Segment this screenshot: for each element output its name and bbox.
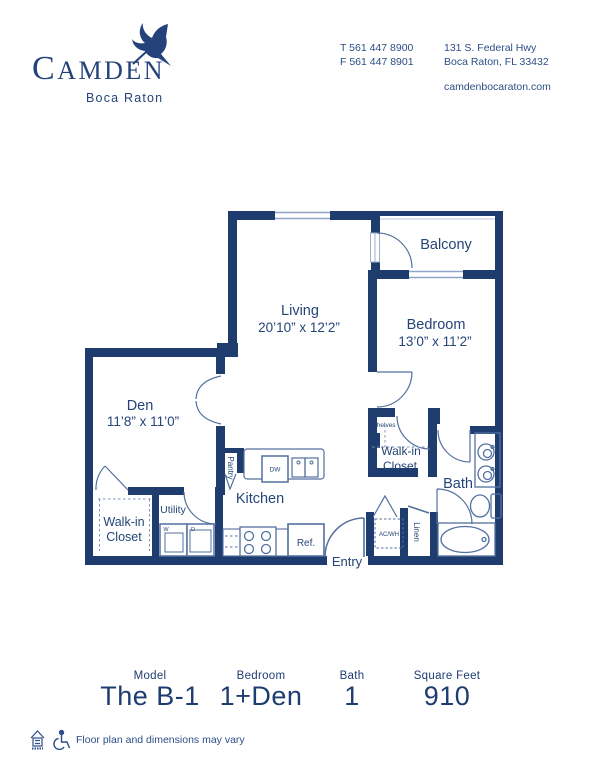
summary-value-sqft: 910 <box>424 681 471 712</box>
utility-door-arc <box>184 492 216 524</box>
bedroom-window <box>409 270 463 279</box>
den-french-door-upper <box>196 376 221 399</box>
room-label-den: Den <box>127 398 154 414</box>
room-label-utility: Utility <box>160 504 186 516</box>
den-closet-door-arc <box>96 466 128 490</box>
kitchen-sink <box>292 458 318 477</box>
room-dims-den: 11’8” x 11’0” <box>107 414 179 429</box>
linen-door-leaf <box>408 506 429 513</box>
balcony-door-arc <box>377 233 412 268</box>
bathtub <box>438 523 495 556</box>
label-shelves-right: Shelves <box>372 422 396 429</box>
bath-upper-door-arc <box>438 430 470 462</box>
entry-door-arc <box>325 518 364 557</box>
accessibility-icons <box>30 729 74 751</box>
room-label-walkin-right-2: Closet <box>383 459 418 473</box>
room-label-entry: Entry <box>332 554 363 569</box>
bath-lower-door-arc <box>437 489 472 524</box>
room-label-walkin-right-1: Walk-in <box>381 444 421 458</box>
label-ref: Ref. <box>297 538 315 549</box>
label-pantry: Pantry <box>226 456 235 479</box>
label-linen: Linen <box>412 522 421 542</box>
room-dims-bedroom: 13’0” x 11’2” <box>398 334 471 349</box>
label-dryer: D <box>191 527 195 533</box>
room-dims-living: 20’10” x 12’2” <box>258 320 340 335</box>
disclaimer-text: Floor plan and dimensions may vary <box>76 734 245 746</box>
room-label-bath: Bath <box>443 476 473 492</box>
bedroom-door-arc <box>377 372 412 407</box>
equal-housing-icon <box>31 731 44 749</box>
label-shelves-left: Shelves <box>128 490 152 497</box>
label-acwh: AC/WH <box>379 532 399 538</box>
room-label-living: Living <box>281 303 319 319</box>
living-window <box>275 211 330 220</box>
floorplan-drawing: Balcony Living 20’10” x 12’2” Bedroom 13… <box>0 0 600 777</box>
summary-value-bath: 1 <box>344 681 360 712</box>
room-label-kitchen: Kitchen <box>236 491 284 507</box>
room-label-walkin-left-2: Closet <box>106 530 142 544</box>
label-washer: W <box>163 527 169 533</box>
wheelchair-icon <box>54 731 70 750</box>
acwh-bifold-door <box>373 496 397 517</box>
room-label-balcony: Balcony <box>420 237 472 253</box>
summary-value-model: The B-1 <box>100 681 200 712</box>
balcony-glass-door <box>371 233 380 262</box>
label-dw: DW <box>270 467 282 474</box>
room-label-bedroom: Bedroom <box>407 317 466 333</box>
counter-dash <box>225 536 240 547</box>
walls <box>85 211 503 565</box>
room-label-walkin-left-1: Walk-in <box>103 515 144 529</box>
stove <box>240 527 276 556</box>
summary-value-bedroom: 1+Den <box>220 681 303 712</box>
den-french-door-lower <box>196 401 221 424</box>
floorplan-sheet: CAMDEN Boca Raton T 561 447 8900 F 561 4… <box>0 0 600 777</box>
